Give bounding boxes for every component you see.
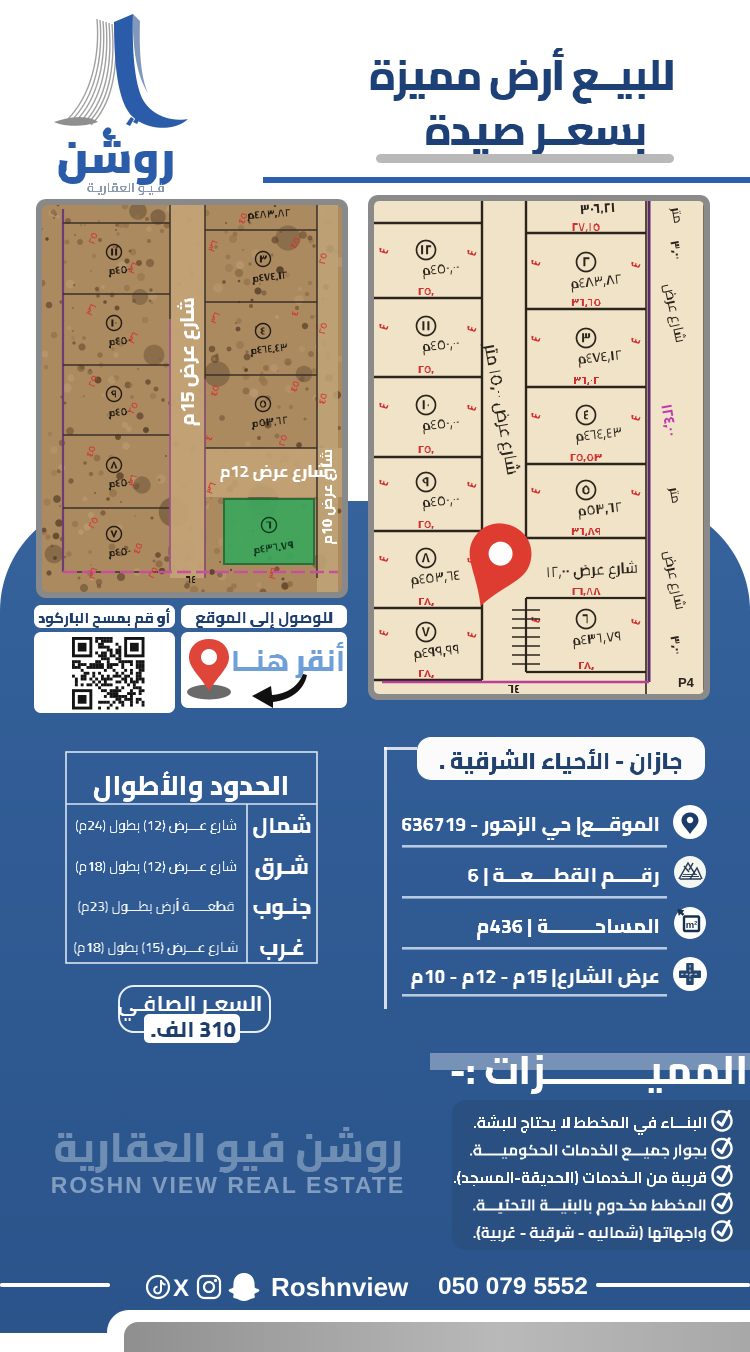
svg-text:X: X: [173, 1275, 189, 1302]
